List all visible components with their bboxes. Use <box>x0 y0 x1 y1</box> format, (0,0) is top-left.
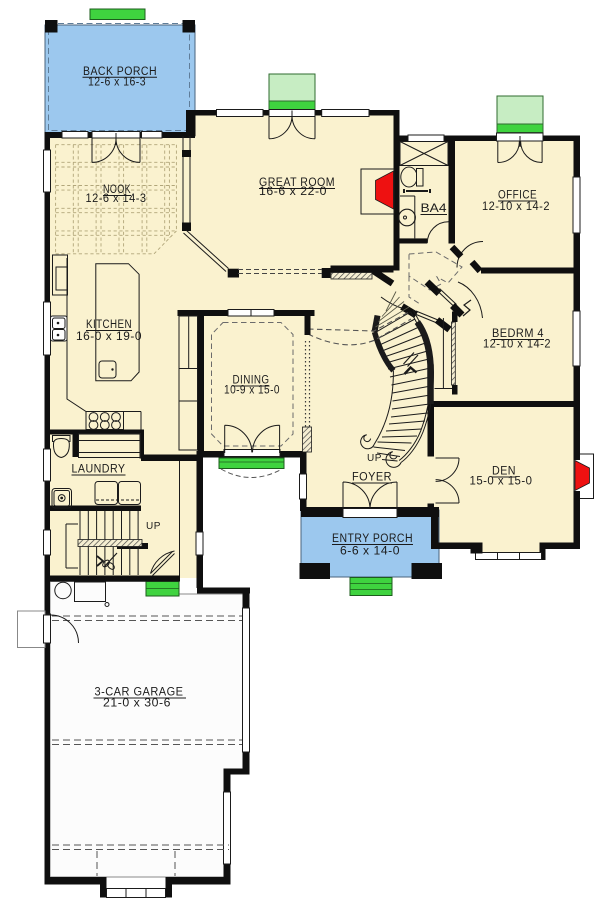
svg-text:FOYER: FOYER <box>352 472 392 484</box>
svg-text:UP: UP <box>367 453 382 464</box>
svg-text:ENTRY PORCH: ENTRY PORCH <box>332 533 413 545</box>
svg-text:LAUNDRY: LAUNDRY <box>72 464 126 476</box>
svg-text:KITCHEN: KITCHEN <box>86 319 132 331</box>
svg-text:10-9 x 15-0: 10-9 x 15-0 <box>224 385 280 397</box>
svg-text:UP: UP <box>146 521 161 532</box>
svg-text:12-10 x 14-2: 12-10 x 14-2 <box>483 339 551 351</box>
svg-text:OFFICE: OFFICE <box>498 190 537 202</box>
svg-text:15-0 x 15-0: 15-0 x 15-0 <box>470 476 533 488</box>
svg-text:21-0 x 30-6: 21-0 x 30-6 <box>103 698 171 710</box>
svg-text:16-0 x 19-0: 16-0 x 19-0 <box>76 331 142 343</box>
svg-text:12-6 x 16-3: 12-6 x 16-3 <box>88 77 146 89</box>
svg-text:6-6 x 14-0: 6-6 x 14-0 <box>340 546 400 558</box>
svg-text:12-6 x 14-3: 12-6 x 14-3 <box>86 193 147 205</box>
svg-text:BA4: BA4 <box>421 203 448 215</box>
svg-text:12-10 x 14-2: 12-10 x 14-2 <box>482 201 550 213</box>
svg-text:16-6 x 22-0: 16-6 x 22-0 <box>259 186 327 198</box>
